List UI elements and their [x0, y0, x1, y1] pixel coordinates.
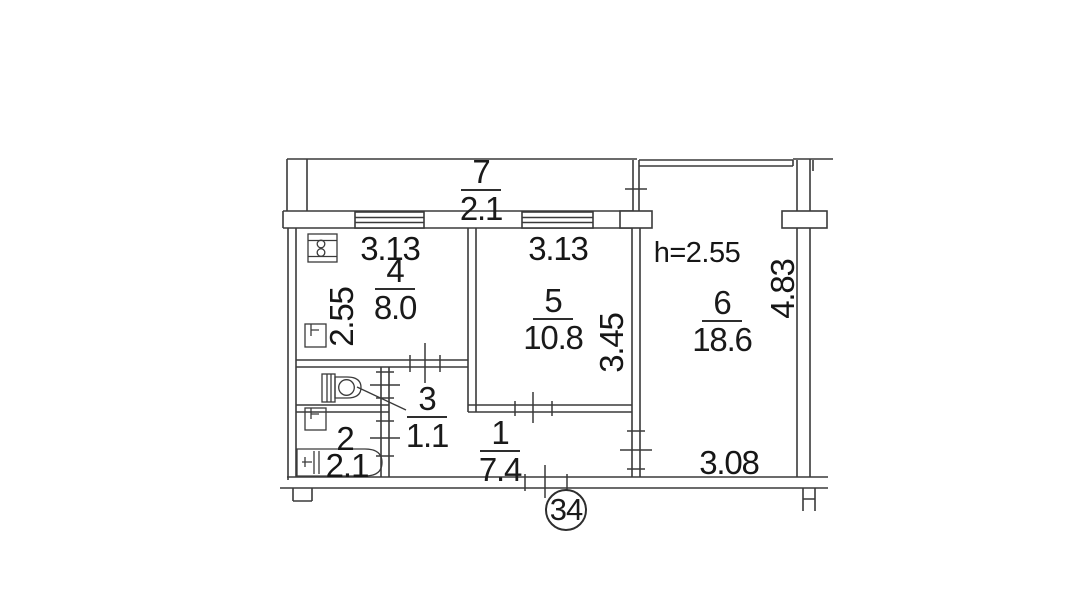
room-6-number: 6: [702, 290, 741, 322]
apartment-number: 34: [550, 492, 582, 528]
dim-room6-depth: 4.83: [766, 229, 800, 349]
dim-room4-width: 3.13: [352, 232, 428, 265]
dim-room4-depth: 2.55: [325, 257, 359, 377]
wall-stub-left: [293, 488, 312, 501]
room-4-area: 8.0: [374, 290, 416, 321]
room-7-label: 7 2.1: [421, 159, 541, 223]
room-1-label: 1 7.4: [440, 420, 560, 484]
dim-room5-width: 3.13: [520, 232, 596, 265]
room-7-number: 7: [461, 159, 500, 191]
door-room5: [515, 392, 552, 423]
ceiling-height-label: h=2.55: [642, 239, 752, 268]
floor-plan: 7 2.1 4 8.0 5 10.8 6 18.6 3 1.1 1 7.4 2 …: [0, 0, 1080, 607]
pillar-left: [620, 211, 652, 228]
room-6-area: 18.6: [692, 322, 751, 353]
window-room4-icon: [355, 212, 424, 228]
room-1-area: 7.4: [479, 452, 521, 483]
dim-room5-depth: 3.45: [595, 283, 629, 403]
apartment-number-badge: 34: [545, 489, 587, 531]
room-3-number: 3: [407, 386, 446, 418]
pillar-right: [782, 211, 827, 228]
door-room4: [410, 343, 440, 383]
dim-room6-width: 3.08: [669, 446, 789, 479]
wall-stub-right: [803, 488, 815, 511]
room-5-number: 5: [533, 288, 572, 320]
room-1-number: 1: [480, 420, 519, 452]
room-7-area: 2.1: [460, 191, 502, 222]
room-5-area: 10.8: [523, 320, 582, 351]
door-room6: [620, 431, 652, 469]
room-2-area: 2.1: [287, 449, 407, 482]
toilet-icon: [322, 374, 361, 402]
